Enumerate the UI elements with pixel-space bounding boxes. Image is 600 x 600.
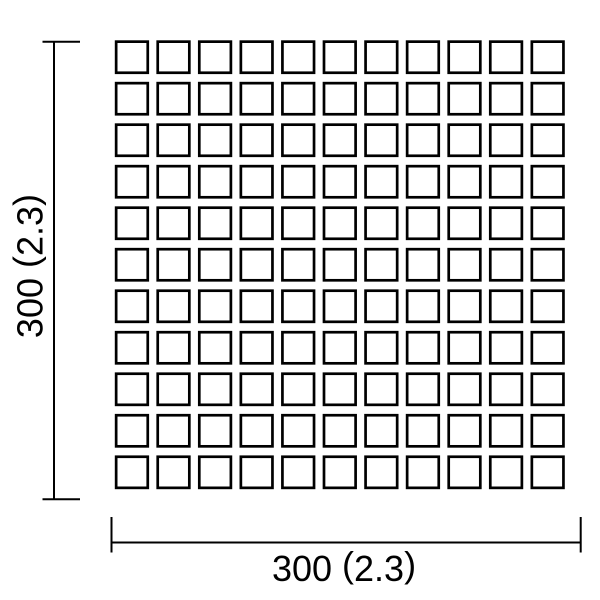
svg-text:300 (2.3): 300 (2.3) xyxy=(272,544,416,589)
svg-text:300 (2.3): 300 (2.3) xyxy=(6,194,51,338)
